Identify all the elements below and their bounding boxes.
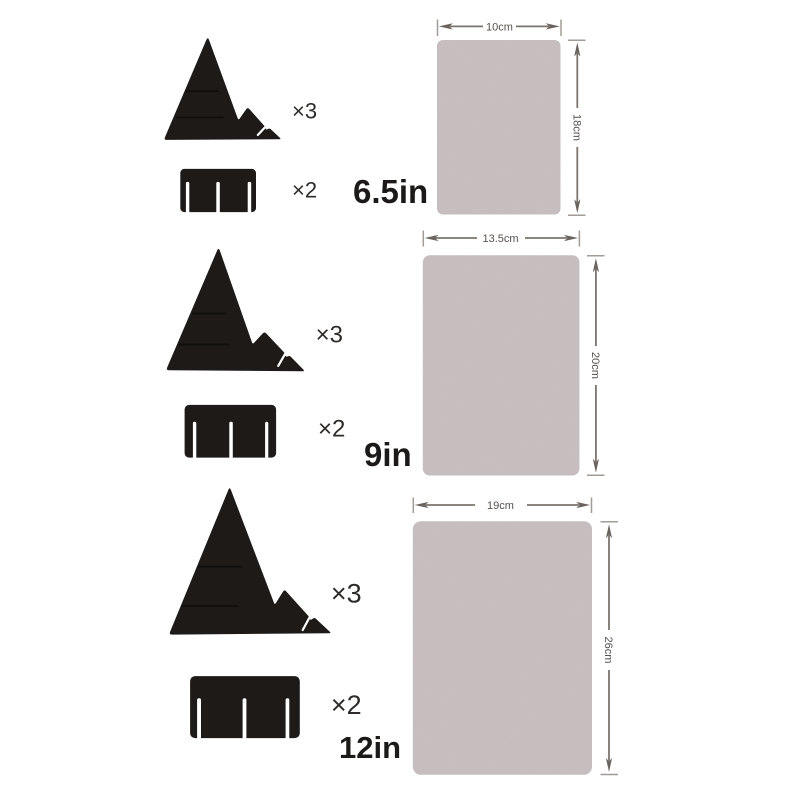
svg-text:20cm: 20cm: [589, 352, 601, 379]
svg-text:26cm: 26cm: [602, 637, 614, 664]
svg-text:12in: 12in: [339, 730, 401, 765]
svg-text:×3: ×3: [292, 98, 317, 123]
svg-text:18cm: 18cm: [570, 114, 582, 141]
svg-text:13.5cm: 13.5cm: [482, 233, 518, 245]
svg-text:×3: ×3: [331, 579, 362, 609]
svg-text:×3: ×3: [316, 322, 343, 349]
svg-text:6.5in: 6.5in: [353, 173, 428, 210]
svg-text:×2: ×2: [318, 415, 345, 442]
svg-text:×2: ×2: [292, 177, 317, 202]
svg-text:19cm: 19cm: [487, 500, 514, 512]
svg-text:10cm: 10cm: [486, 21, 513, 33]
svg-text:9in: 9in: [364, 436, 412, 473]
svg-text:×2: ×2: [331, 690, 362, 720]
